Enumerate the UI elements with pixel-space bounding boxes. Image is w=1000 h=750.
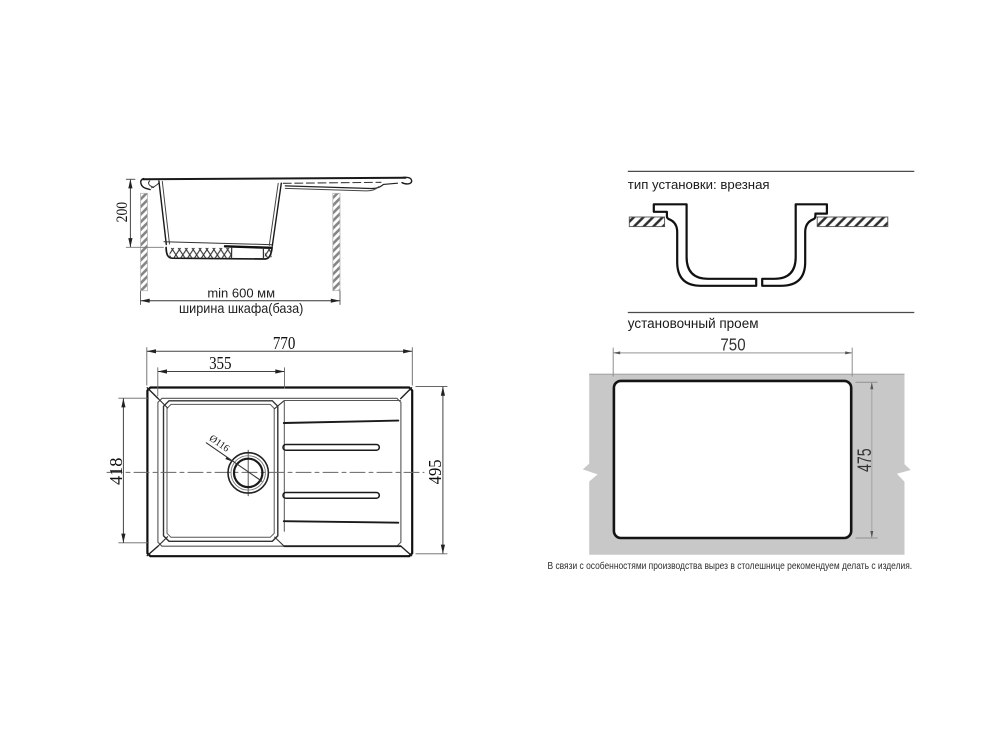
svg-text:355: 355 — [209, 352, 231, 373]
svg-text:750: 750 — [720, 336, 745, 355]
svg-text:ширина шкафа(база): ширина шкафа(база) — [179, 301, 303, 316]
svg-text:установочный проем: установочный проем — [628, 316, 759, 331]
svg-text:тип установки: врезная: тип установки: врезная — [628, 177, 770, 192]
svg-text:В связи с особенностями произв: В связи с особенностями производства выр… — [548, 560, 913, 571]
svg-text:770: 770 — [273, 332, 295, 353]
svg-text:475: 475 — [854, 448, 876, 472]
svg-text:min 600 мм: min 600 мм — [207, 286, 275, 301]
svg-text:200: 200 — [114, 202, 131, 222]
svg-text:495: 495 — [424, 459, 445, 484]
svg-text:418: 418 — [106, 458, 126, 485]
